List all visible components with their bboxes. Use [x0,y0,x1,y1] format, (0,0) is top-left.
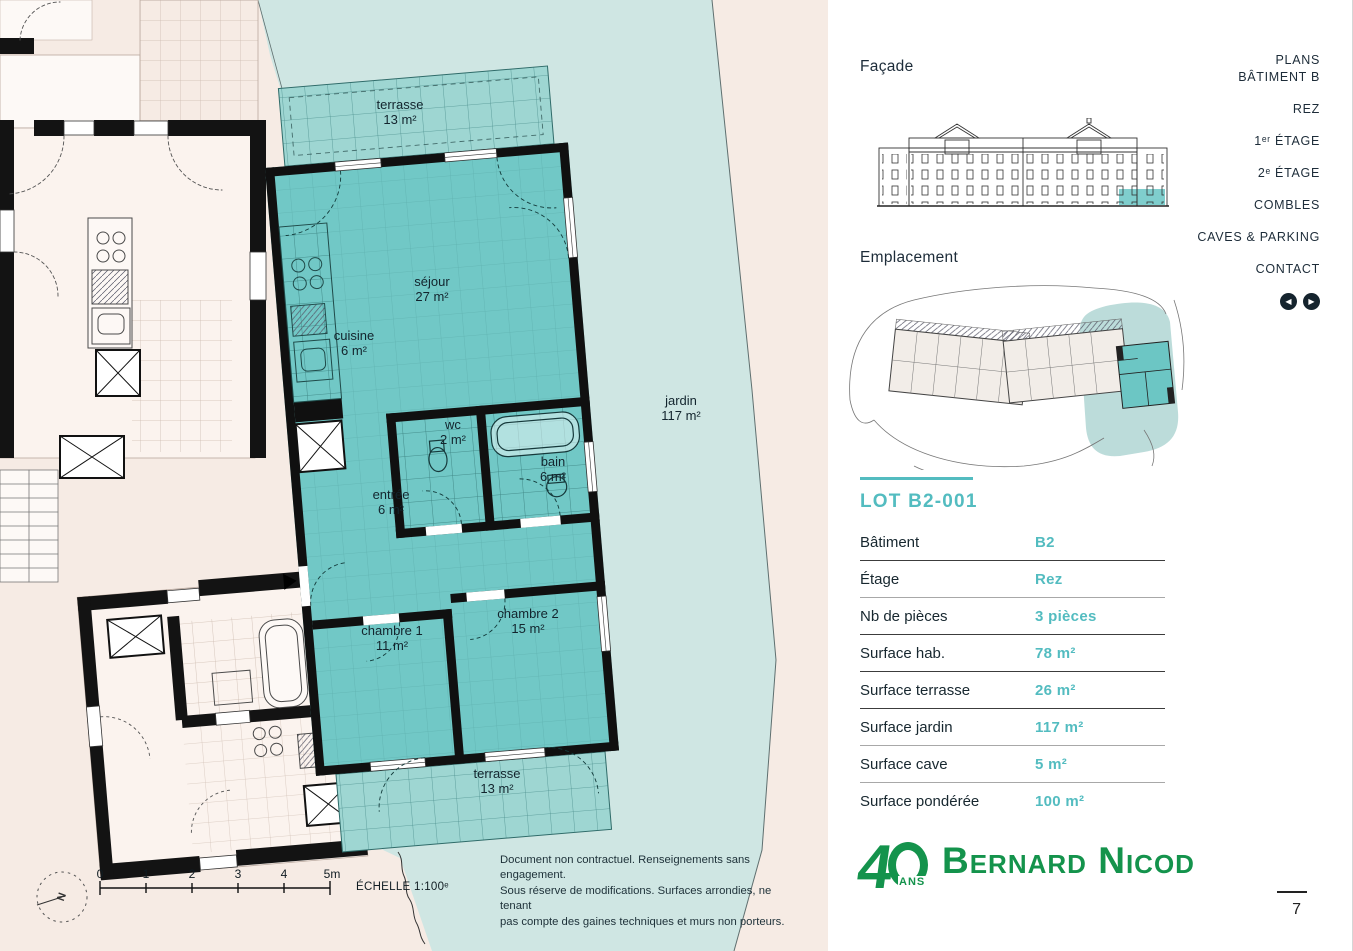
row-label: Surface jardin [860,719,1035,736]
row-value: Rez [1035,571,1063,588]
table-row: Surface jardin 117 m² [860,709,1165,746]
table-row: Surface terrasse 26 m² [860,672,1165,709]
logo-wordmark: Bernard Nicod [942,840,1195,882]
room-label-cuisine: cuisine6 m² [334,328,374,358]
lot-spec-table: Bâtiment B2 Étage Rez Nb de pièces 3 piè… [860,524,1165,819]
row-label: Surface cave [860,756,1035,773]
table-row: Surface pondérée 100 m² [860,783,1165,819]
room-label-jardin: jardin117 m² [661,393,701,423]
room-label-terrasse-top: terrasse13 m² [377,97,424,127]
row-value: B2 [1035,534,1055,551]
nav-item-caves-parking[interactable]: CAVES & PARKING [1170,229,1320,246]
row-label: Bâtiment [860,534,1035,551]
nav-item-combles[interactable]: COMBLES [1170,197,1320,214]
row-label: Surface pondérée [860,793,1035,810]
row-value: 78 m² [1035,645,1076,662]
table-row: Nb de pièces 3 pièces [860,598,1165,635]
arrow-left-icon: ◀ [1285,297,1291,306]
nav-item-rez[interactable]: REZ [1170,101,1320,118]
scale-label: ÉCHELLE 1:100ᵉ [356,881,449,893]
table-row: Étage Rez [860,561,1165,598]
room-label-entree: entrée6 m² [373,487,410,517]
floor-plan-panel: terrasse13 m² séjour27 m² cuisine6 m² wc… [0,0,828,951]
facade-label: Façade [860,58,914,76]
nav-item-2e-etage[interactable]: 2ᵉ ÉTAGE [1170,165,1320,182]
facade-drawing [873,118,1173,218]
row-value: 5 m² [1035,756,1067,773]
prev-page-button[interactable]: ◀ [1280,293,1297,310]
disclaimer-text: Document non contractuel. Renseignements… [500,853,800,930]
lot-title-rule [860,477,973,480]
table-row: Bâtiment B2 [860,524,1165,561]
row-value: 117 m² [1035,719,1084,736]
room-label-terrasse-bottom: terrasse13 m² [474,766,521,796]
scale-tick-1: 1 [143,867,150,881]
bernard-nicod-logo: 4 ANS Bernard Nicod [858,836,1195,902]
logo-ans: ANS [898,876,926,888]
table-row: Surface hab. 78 m² [860,635,1165,672]
nav-item-1er-etage[interactable]: 1ᵉʳ ÉTAGE [1170,133,1320,150]
row-value: 26 m² [1035,682,1076,699]
row-value: 3 pièces [1035,608,1097,625]
row-label: Surface hab. [860,645,1035,662]
next-page-button[interactable]: ▶ [1303,293,1320,310]
site-plan-drawing [844,270,1189,475]
logo-40-ans-mark: 4 ANS [858,836,932,902]
info-sidebar: Façade Em [828,0,1353,951]
room-label-chambre2: chambre 215 m² [497,606,558,636]
row-value: 100 m² [1035,793,1084,810]
nav-item-plans-batiment-b[interactable]: PLANSBÂTIMENT B [1170,52,1320,86]
scale-tick-0: 0 [97,867,104,881]
row-label: Surface terrasse [860,682,1035,699]
lot-title: LOT B2-001 [860,491,978,513]
plans-navigation: PLANSBÂTIMENT B REZ 1ᵉʳ ÉTAGE 2ᵉ ÉTAGE C… [1170,52,1320,310]
scale-tick-5: 5m [324,867,341,881]
row-label: Étage [860,571,1035,588]
table-row: Surface cave 5 m² [860,746,1165,783]
emplacement-label: Emplacement [860,249,958,267]
room-label-bain: bain6 m² [540,454,566,484]
room-label-wc: wc2 m² [440,417,466,447]
room-label-sejour: séjour27 m² [414,274,449,304]
scale-tick-3: 3 [235,867,242,881]
scale-tick-4: 4 [281,867,288,881]
page-number-rule [1277,891,1307,893]
floor-plan-drawing [0,0,828,951]
scale-tick-2: 2 [189,867,196,881]
row-label: Nb de pièces [860,608,1035,625]
room-label-chambre1: chambre 111 m² [361,623,422,653]
page-number: 7 [1292,901,1301,919]
brochure-page: terrasse13 m² séjour27 m² cuisine6 m² wc… [0,0,1353,951]
nav-item-contact[interactable]: CONTACT [1170,261,1320,278]
arrow-right-icon: ▶ [1308,297,1314,306]
